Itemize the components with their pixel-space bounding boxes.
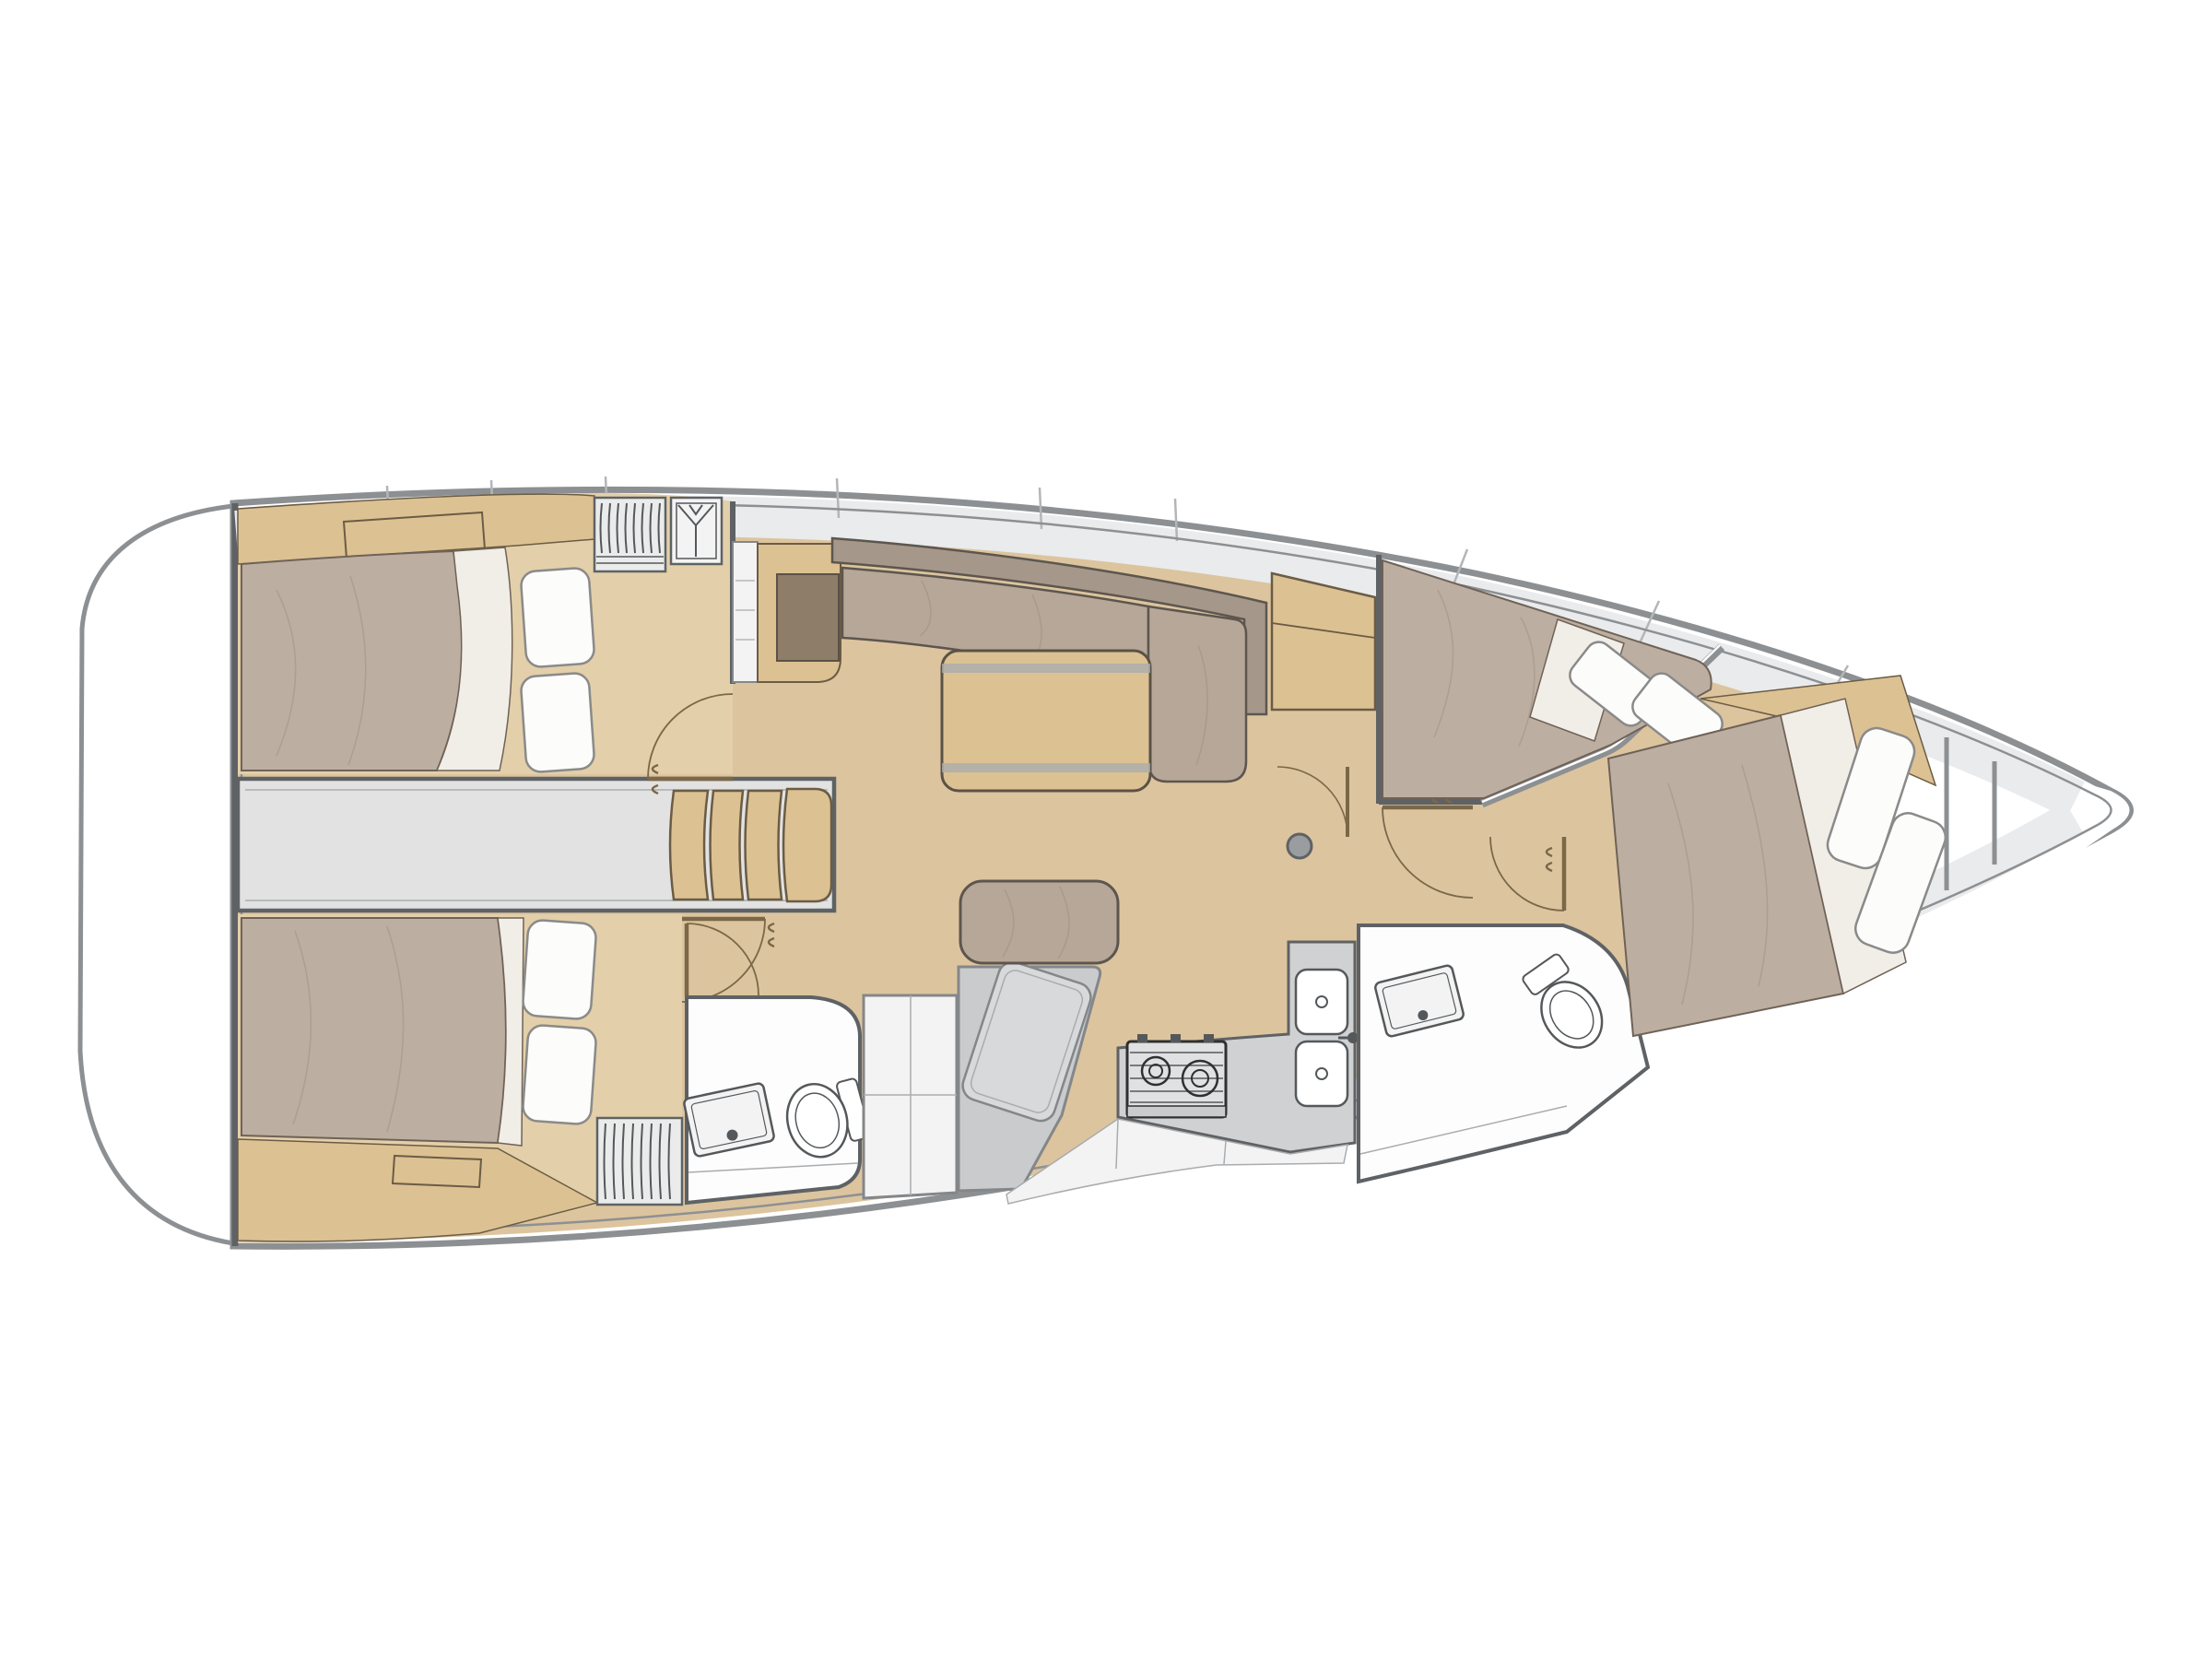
companionway-side-panel <box>733 542 758 682</box>
yacht-floor-plan-page <box>0 0 2212 1659</box>
wet-locker-cabinet <box>864 995 957 1198</box>
table-leaf-hinge <box>942 763 1150 772</box>
pillow <box>520 568 594 668</box>
hanging-locker <box>597 1118 682 1205</box>
pillow <box>520 673 594 773</box>
saloon-table <box>942 651 1150 791</box>
potholder-clip <box>1137 1034 1147 1042</box>
step-tread-wide <box>783 789 831 901</box>
companionway-steps <box>670 789 831 901</box>
table-leaf-hinge <box>942 664 1150 673</box>
nav-bench-cushion <box>960 881 1118 963</box>
forward-cabinet <box>1272 573 1375 710</box>
transom-platform-outline <box>80 506 233 1243</box>
stove-front-band <box>1127 1106 1226 1117</box>
stove <box>1127 1034 1226 1117</box>
step-tread <box>746 791 782 900</box>
forward-head <box>1359 925 1648 1182</box>
pillow <box>522 1025 596 1125</box>
hanging-locker <box>594 498 665 571</box>
aft-cabin-starboard <box>238 493 733 794</box>
floor-plan-svg <box>0 0 2212 1659</box>
double-bed-duvet <box>241 918 506 1143</box>
step-tread <box>670 791 708 900</box>
chart-desk-top <box>777 574 839 661</box>
potholder-clip <box>1204 1034 1214 1042</box>
pillow <box>522 920 596 1020</box>
settee-cushion-corner <box>1148 606 1246 782</box>
step-tread <box>711 791 744 900</box>
potholder-clip <box>1171 1034 1181 1042</box>
head-floor <box>1359 925 1648 1182</box>
double-bed-duvet <box>241 551 462 771</box>
wardrobe <box>671 498 722 564</box>
mast-post <box>1288 834 1312 858</box>
